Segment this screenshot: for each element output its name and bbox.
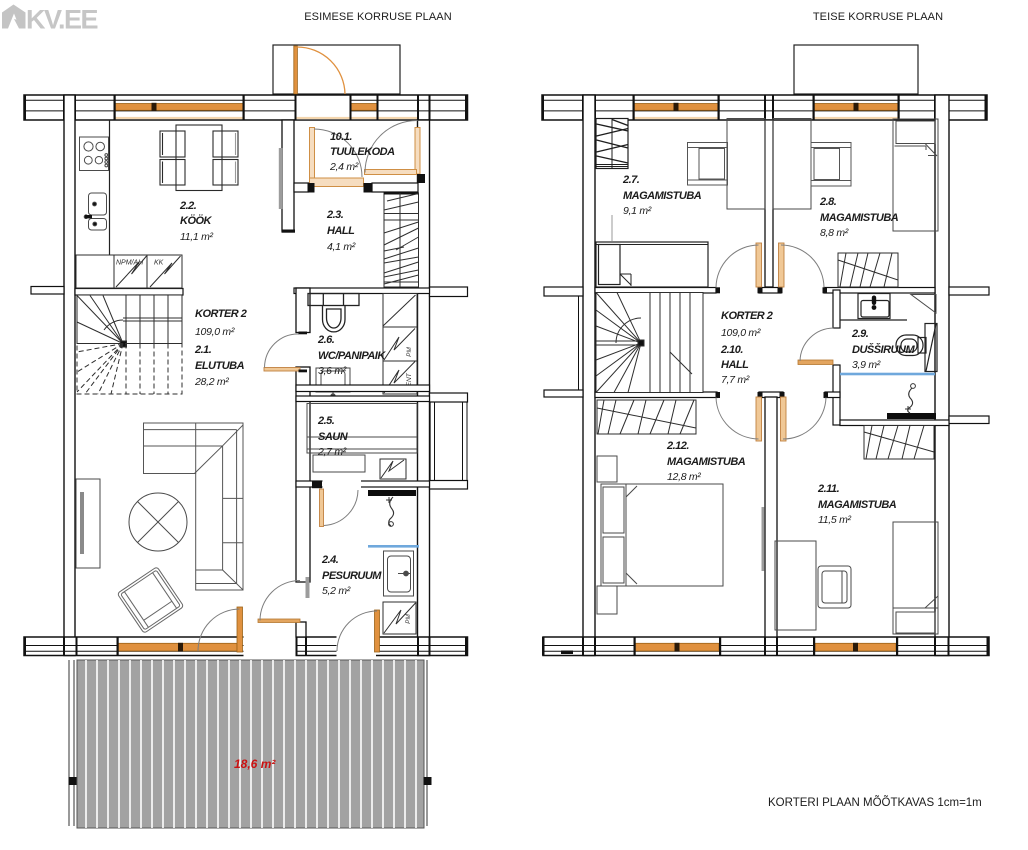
svg-text:2.8.: 2.8.	[819, 196, 837, 208]
svg-text:12,8 m²: 12,8 m²	[667, 471, 701, 483]
svg-text:2.9.: 2.9.	[851, 328, 869, 340]
svg-text:2.1.: 2.1.	[194, 344, 212, 356]
svg-text:KV.EE: KV.EE	[26, 5, 98, 35]
svg-text:28,2 m²: 28,2 m²	[194, 376, 229, 388]
svg-text:HALL: HALL	[721, 359, 749, 371]
svg-text:2.2.: 2.2.	[179, 200, 197, 212]
svg-text:5,2 m²: 5,2 m²	[322, 585, 351, 597]
svg-text:2.11.: 2.11.	[817, 483, 840, 495]
svg-text:SAUN: SAUN	[318, 431, 349, 443]
svg-text:KK: KK	[154, 260, 164, 267]
svg-text:NPM/AH: NPM/AH	[116, 260, 144, 267]
svg-text:MAGAMISTUBA: MAGAMISTUBA	[667, 456, 746, 468]
svg-text:2.3.: 2.3.	[326, 209, 344, 221]
svg-text:11,1 m²: 11,1 m²	[180, 231, 214, 243]
svg-text:3,9 m²: 3,9 m²	[852, 359, 881, 371]
svg-text:2.6.: 2.6.	[317, 334, 335, 346]
svg-text:2.7.: 2.7.	[622, 174, 640, 186]
svg-text:PESURUUM: PESURUUM	[322, 570, 382, 582]
svg-text:4,1 m²: 4,1 m²	[327, 241, 356, 253]
svg-text:2.12.: 2.12.	[666, 440, 689, 452]
svg-text:TUULEKODA: TUULEKODA	[330, 146, 395, 158]
svg-text:2.10.: 2.10.	[720, 344, 743, 356]
svg-text:18,6 m²: 18,6 m²	[234, 757, 276, 771]
svg-text:WC/PANIPAIK: WC/PANIPAIK	[318, 350, 386, 362]
svg-text:2,4 m²: 2,4 m²	[329, 161, 359, 173]
svg-text:ELUTUBA: ELUTUBA	[195, 360, 245, 372]
svg-text:ESIMESE KORRUSE PLAAN: ESIMESE KORRUSE PLAAN	[304, 11, 452, 23]
svg-text:MAGAMISTUBA: MAGAMISTUBA	[818, 499, 897, 511]
svg-text:10.1.: 10.1.	[330, 131, 352, 143]
svg-text:HALL: HALL	[327, 225, 355, 237]
svg-text:PM: PM	[406, 347, 413, 357]
svg-text:2,7 m²: 2,7 m²	[317, 446, 347, 458]
svg-text:109,0 m²: 109,0 m²	[195, 326, 235, 338]
svg-text:9,1 m²: 9,1 m²	[623, 205, 652, 217]
svg-text:MAGAMISTUBA: MAGAMISTUBA	[820, 212, 899, 224]
svg-text:7,7 m²: 7,7 m²	[721, 374, 750, 386]
svg-text:TEISE KORRUSE PLAAN: TEISE KORRUSE PLAAN	[813, 11, 943, 23]
svg-text:2.4.: 2.4.	[321, 554, 339, 566]
svg-text:11,5 m²: 11,5 m²	[818, 514, 852, 526]
svg-text:PM: PM	[405, 614, 412, 624]
svg-text:MAGAMISTUBA: MAGAMISTUBA	[623, 190, 702, 202]
svg-text:KORTER 2: KORTER 2	[195, 308, 247, 320]
svg-text:2.5.: 2.5.	[317, 415, 335, 427]
svg-text:109,0 m²: 109,0 m²	[721, 327, 761, 339]
svg-text:KORTERI PLAAN MÕÕTKAVAS 1cm=1m: KORTERI PLAAN MÕÕTKAVAS 1cm=1m	[768, 796, 982, 809]
svg-text:8,8 m²: 8,8 m²	[820, 227, 849, 239]
svg-text:DUŠŠIRUUM: DUŠŠIRUUM	[852, 343, 915, 356]
svg-text:KORTER 2: KORTER 2	[721, 310, 773, 322]
svg-text:KÖÖK: KÖÖK	[180, 214, 213, 227]
svg-text:3,6 m²: 3,6 m²	[318, 365, 347, 377]
